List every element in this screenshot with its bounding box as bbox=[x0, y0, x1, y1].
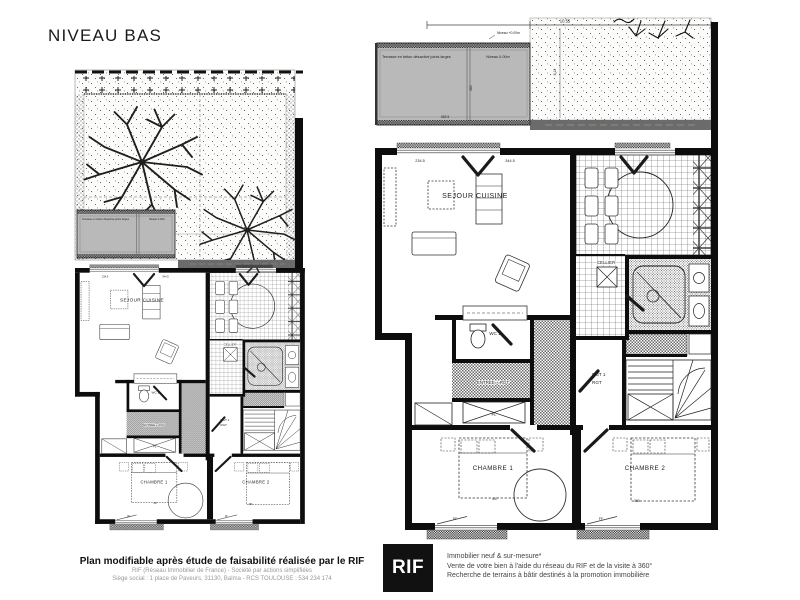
right-building bbox=[375, 143, 718, 539]
footer-legal-block: Plan modifiable après étude de faisabili… bbox=[72, 556, 372, 583]
dim-side-label: 8.12 bbox=[553, 69, 557, 76]
left-plan: Terrasse en béton désactivé joints large… bbox=[75, 70, 305, 530]
right-plan: 10.55 Niveau +0.00m 8.12 bbox=[375, 18, 718, 539]
terrace-dim-width: 453.5 bbox=[441, 115, 450, 119]
plan-sheet: NIVEAU BAS bbox=[0, 0, 800, 600]
terrace-niveau: Niveau 0.00m bbox=[486, 55, 509, 59]
boundary-wall bbox=[295, 118, 303, 268]
terrace-label-small: Terrasse en béton désactivé joints large… bbox=[82, 217, 130, 221]
boundary-wall bbox=[711, 22, 718, 148]
service-line-3: Recherche de terrains à bâtir destinés à… bbox=[447, 571, 652, 581]
footer-address-line: Siège social : 1 place de Paveurs, 31130… bbox=[72, 576, 372, 583]
garden-niveau-label: Niveau +0.00m bbox=[497, 31, 520, 35]
right-garden: 10.55 Niveau +0.00m 8.12 bbox=[375, 18, 718, 148]
terrace-dim-height: 280 bbox=[469, 85, 473, 91]
floorplan-canvas: SEJOUR CUISINE WC 1 CELLIER ENTREE + RGT… bbox=[0, 0, 800, 600]
footer-company-line: RIF (Réseau Immobilier de France) - Soci… bbox=[72, 568, 372, 575]
dim-total-label: 10.55 bbox=[560, 19, 571, 24]
right-concrete-terrace: Terrasse en béton désactivé joints large… bbox=[375, 43, 530, 125]
service-line-2: Vente de votre bien à l'aide du réseau d… bbox=[447, 562, 652, 572]
service-line-1: Immobilier neuf & sur-mesure* bbox=[447, 552, 652, 562]
rif-logo: RIF bbox=[383, 544, 433, 592]
footer-services-block: Immobilier neuf & sur-mesure* Vente de v… bbox=[447, 552, 652, 581]
terrace-label: Terrasse en béton désactivé joints large… bbox=[382, 55, 451, 59]
terrace-niveau-small: Niveau 0.00m bbox=[149, 217, 165, 221]
left-building bbox=[75, 265, 305, 530]
left-concrete-terrace: Terrasse en béton désactivé joints large… bbox=[77, 210, 175, 258]
footer-headline: Plan modifiable après étude de faisabili… bbox=[72, 556, 372, 567]
left-garden: Terrasse en béton désactivé joints large… bbox=[75, 70, 303, 277]
